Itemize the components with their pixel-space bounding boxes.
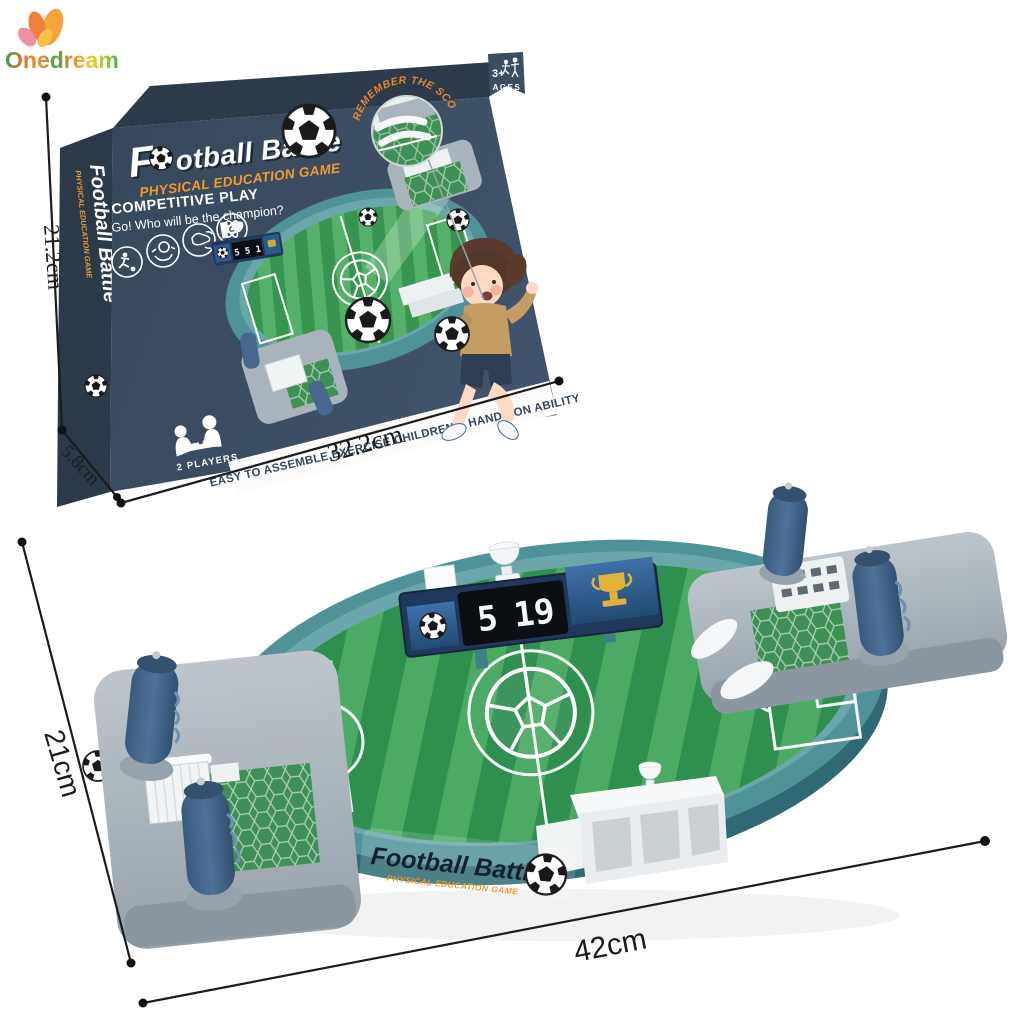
spine-soccer-ball-icon — [85, 375, 108, 397]
ages-3plus-ribbon: 3+ AGES — [488, 52, 525, 96]
box-art-ball-right-icon — [447, 209, 470, 231]
box-art-ball-small-icon — [359, 208, 378, 226]
goal-unit-left — [91, 648, 364, 952]
dim-game-depth: 21cm — [38, 726, 87, 800]
score-right: 19 — [511, 591, 557, 636]
game-product: 5 19 — [82, 480, 1012, 951]
scene: Onedream Football Battle PHYSICAL EDUCAT… — [0, 0, 1024, 1024]
goal-unit-right — [674, 480, 1013, 718]
product-box: Football Battle PHYSICAL EDUCATION GAME … — [0, 0, 581, 507]
brand-logo-text: Onedream — [5, 47, 119, 73]
brand-logo: Onedream — [5, 6, 119, 73]
box-art-ball-big-icon — [345, 298, 391, 342]
flower-flame-icon — [14, 6, 67, 50]
dim-box-height: 21.2cm — [39, 224, 69, 291]
kid-kicking-ball-icon — [434, 317, 469, 351]
ages-label: AGES — [493, 83, 522, 92]
title-soccer-ball-icon — [282, 105, 336, 157]
product-photo-canvas: Onedream Football Battle PHYSICAL EDUCAT… — [0, 0, 1024, 1024]
